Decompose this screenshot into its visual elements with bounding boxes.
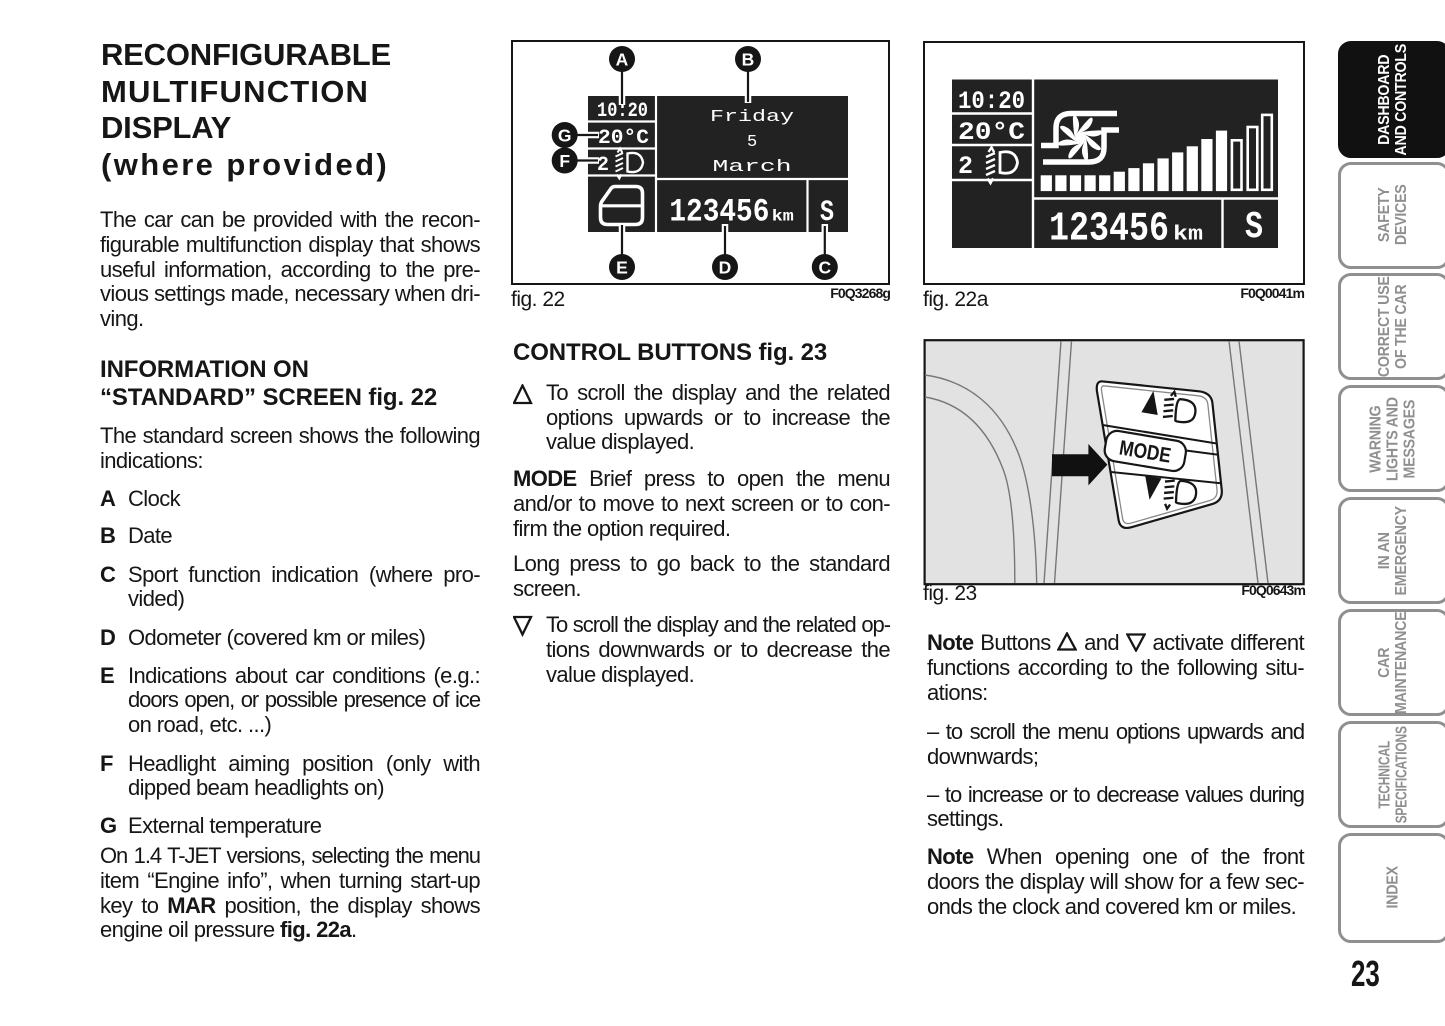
svg-text:10:20: 10:20 [958,87,1025,116]
svg-text:5: 5 [747,133,757,152]
svg-text:E: E [616,257,628,277]
svg-text:B: B [742,49,755,69]
svg-text:Friday: Friday [710,108,794,127]
svg-text:km: km [1173,224,1203,247]
svg-text:C: C [818,257,831,277]
svg-text:D: D [719,257,732,277]
svg-text:G: G [558,125,572,145]
svg-text:A: A [616,49,629,69]
svg-text:km: km [772,208,794,226]
svg-text:F: F [559,151,570,171]
svg-text:March: March [713,158,792,177]
svg-text:123456: 123456 [669,194,769,231]
svg-text:20°C: 20°C [958,118,1025,147]
svg-text:S: S [1245,206,1263,249]
svg-text:123456: 123456 [1049,207,1169,253]
svg-text:2: 2 [958,152,973,181]
svg-text:20°C: 20°C [598,127,649,150]
